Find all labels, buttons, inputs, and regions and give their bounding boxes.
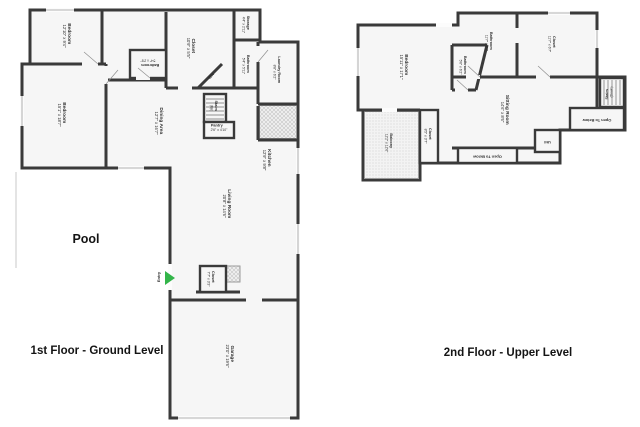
door-gap-bedroom2 (104, 66, 108, 84)
floor1-plan: Bedroom 12'10" x 9'4" Bedroom 15'1" x 18… (16, 8, 300, 420)
door-gap-bath-divider (515, 28, 519, 43)
door-gap-laundry (256, 46, 260, 62)
util-label: Util (544, 140, 550, 145)
pool-label: Pool (72, 232, 99, 246)
floorplan-page: Bedroom 12'10" x 9'4" Bedroom 15'1" x 18… (0, 0, 640, 427)
door-gap-bedroom1 (82, 62, 98, 66)
door-gap-garage (246, 298, 262, 302)
door-gap-closet-top (536, 75, 550, 79)
deck-hatch (260, 106, 297, 139)
floor2-title: 2nd Floor - Upper Level (444, 347, 572, 359)
door-gap-bedroom2-top (436, 23, 452, 27)
floor2-plan: Bedroom 15'11" x 17'1" Bathroom 5'6" x 6… (356, 11, 625, 359)
entry-label: Entry (156, 271, 161, 282)
door-gap-balcony (382, 108, 397, 112)
door-gap-closet (178, 86, 192, 90)
floorplan-svg: Bedroom 12'10" x 9'4" Bedroom 15'1" x 18… (0, 0, 640, 427)
fireplace-hatch (226, 266, 240, 282)
open-below-right-label: Open To Below (582, 118, 612, 123)
open-below-left-label: Open To Below (472, 155, 502, 160)
floor1-title: 1st Floor - Ground Level (31, 345, 164, 357)
